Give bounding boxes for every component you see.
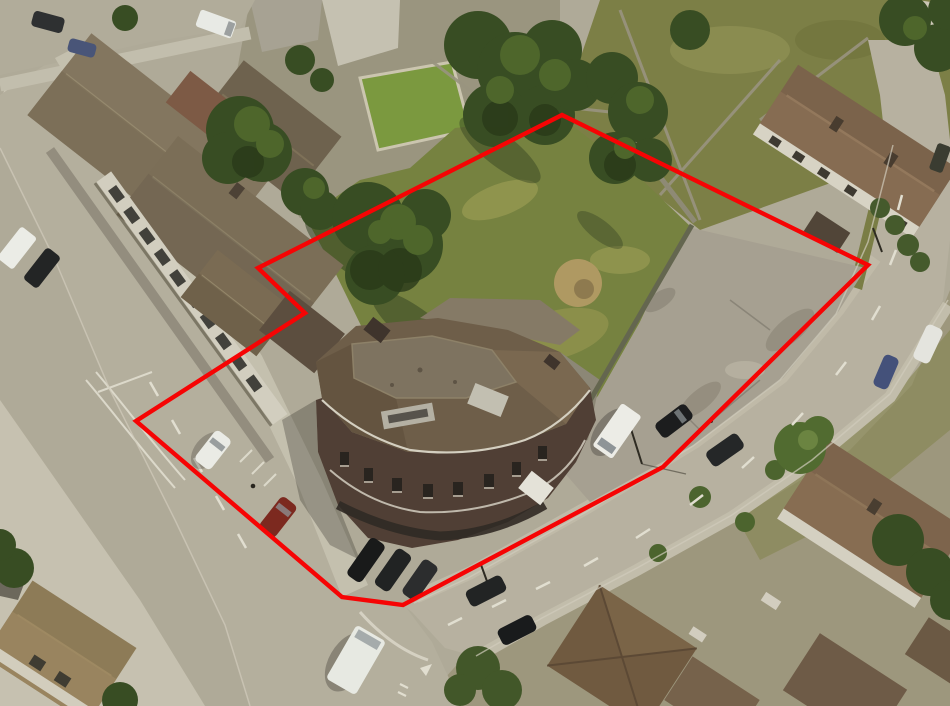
- aerial-photo-stage: [0, 0, 950, 706]
- aerial-photograph: [0, 0, 950, 706]
- photo-tint: [0, 0, 950, 706]
